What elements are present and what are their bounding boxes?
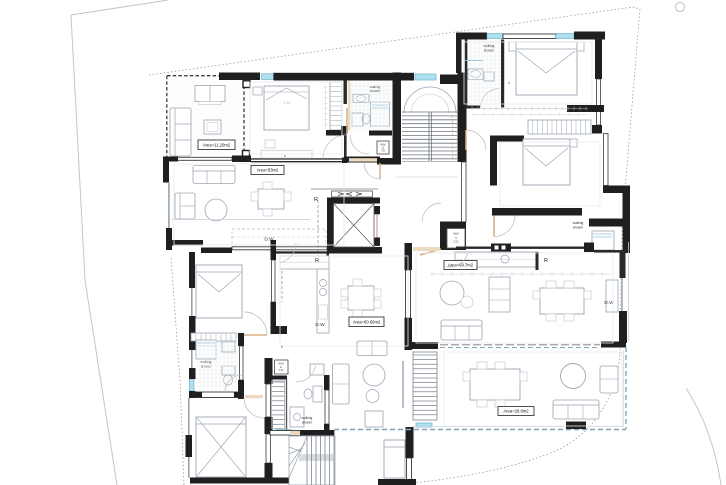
svg-text:Area=28.6m2: Area=28.6m2 — [503, 409, 529, 414]
svg-text:b: b — [281, 345, 283, 349]
svg-text:b: b — [284, 154, 286, 158]
svg-text:Area=60.60m2: Area=60.60m2 — [353, 319, 381, 324]
svg-text:T.D: T.D — [381, 149, 385, 153]
svg-text:walking: walking — [302, 416, 313, 420]
svg-text:b: b — [508, 81, 510, 85]
svg-text:walking: walking — [573, 221, 584, 225]
svg-text:shower: shower — [370, 89, 381, 93]
svg-text:shower: shower — [573, 226, 584, 230]
svg-text:R: R — [314, 197, 318, 203]
svg-text:Area=53m2: Area=53m2 — [257, 168, 279, 173]
svg-text:R: R — [544, 258, 548, 264]
svg-text:Area=11.20m2: Area=11.20m2 — [203, 142, 231, 147]
svg-text:1.80: 1.80 — [284, 101, 291, 105]
svg-text:C.D: C.D — [454, 240, 459, 244]
svg-text:shower: shower — [302, 421, 313, 425]
svg-text:shower: shower — [201, 365, 212, 369]
svg-text:C.D: C.D — [279, 368, 284, 372]
svg-text:W.M: W.M — [453, 232, 459, 236]
svg-text:walking: walking — [484, 44, 495, 48]
svg-text:D.W: D.W — [315, 322, 325, 328]
svg-text:R: R — [315, 258, 319, 264]
svg-text:&: & — [455, 236, 457, 240]
